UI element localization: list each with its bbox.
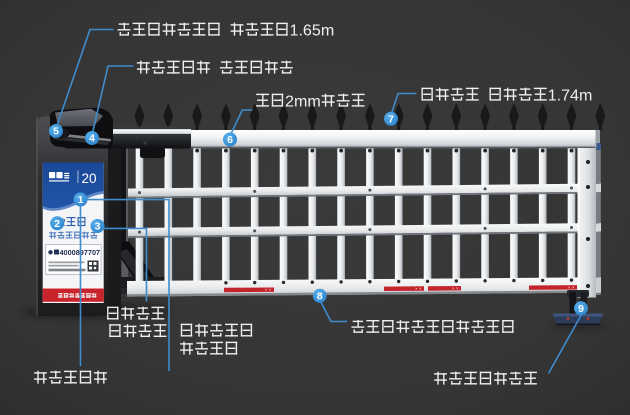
svg-text:20: 20 [82, 171, 97, 186]
svg-text:2mm: 2mm [285, 93, 321, 111]
svg-text:3: 3 [95, 221, 101, 233]
svg-text:1.74m: 1.74m [548, 87, 593, 105]
svg-text:2: 2 [54, 218, 60, 230]
svg-text:1.65m: 1.65m [290, 22, 335, 40]
svg-text:6: 6 [227, 134, 233, 146]
svg-text:5: 5 [53, 126, 59, 138]
svg-text:1: 1 [78, 194, 84, 206]
svg-text:7: 7 [388, 113, 394, 125]
svg-text:9: 9 [578, 303, 584, 315]
svg-text:4: 4 [89, 133, 95, 145]
svg-text:8: 8 [317, 290, 323, 302]
